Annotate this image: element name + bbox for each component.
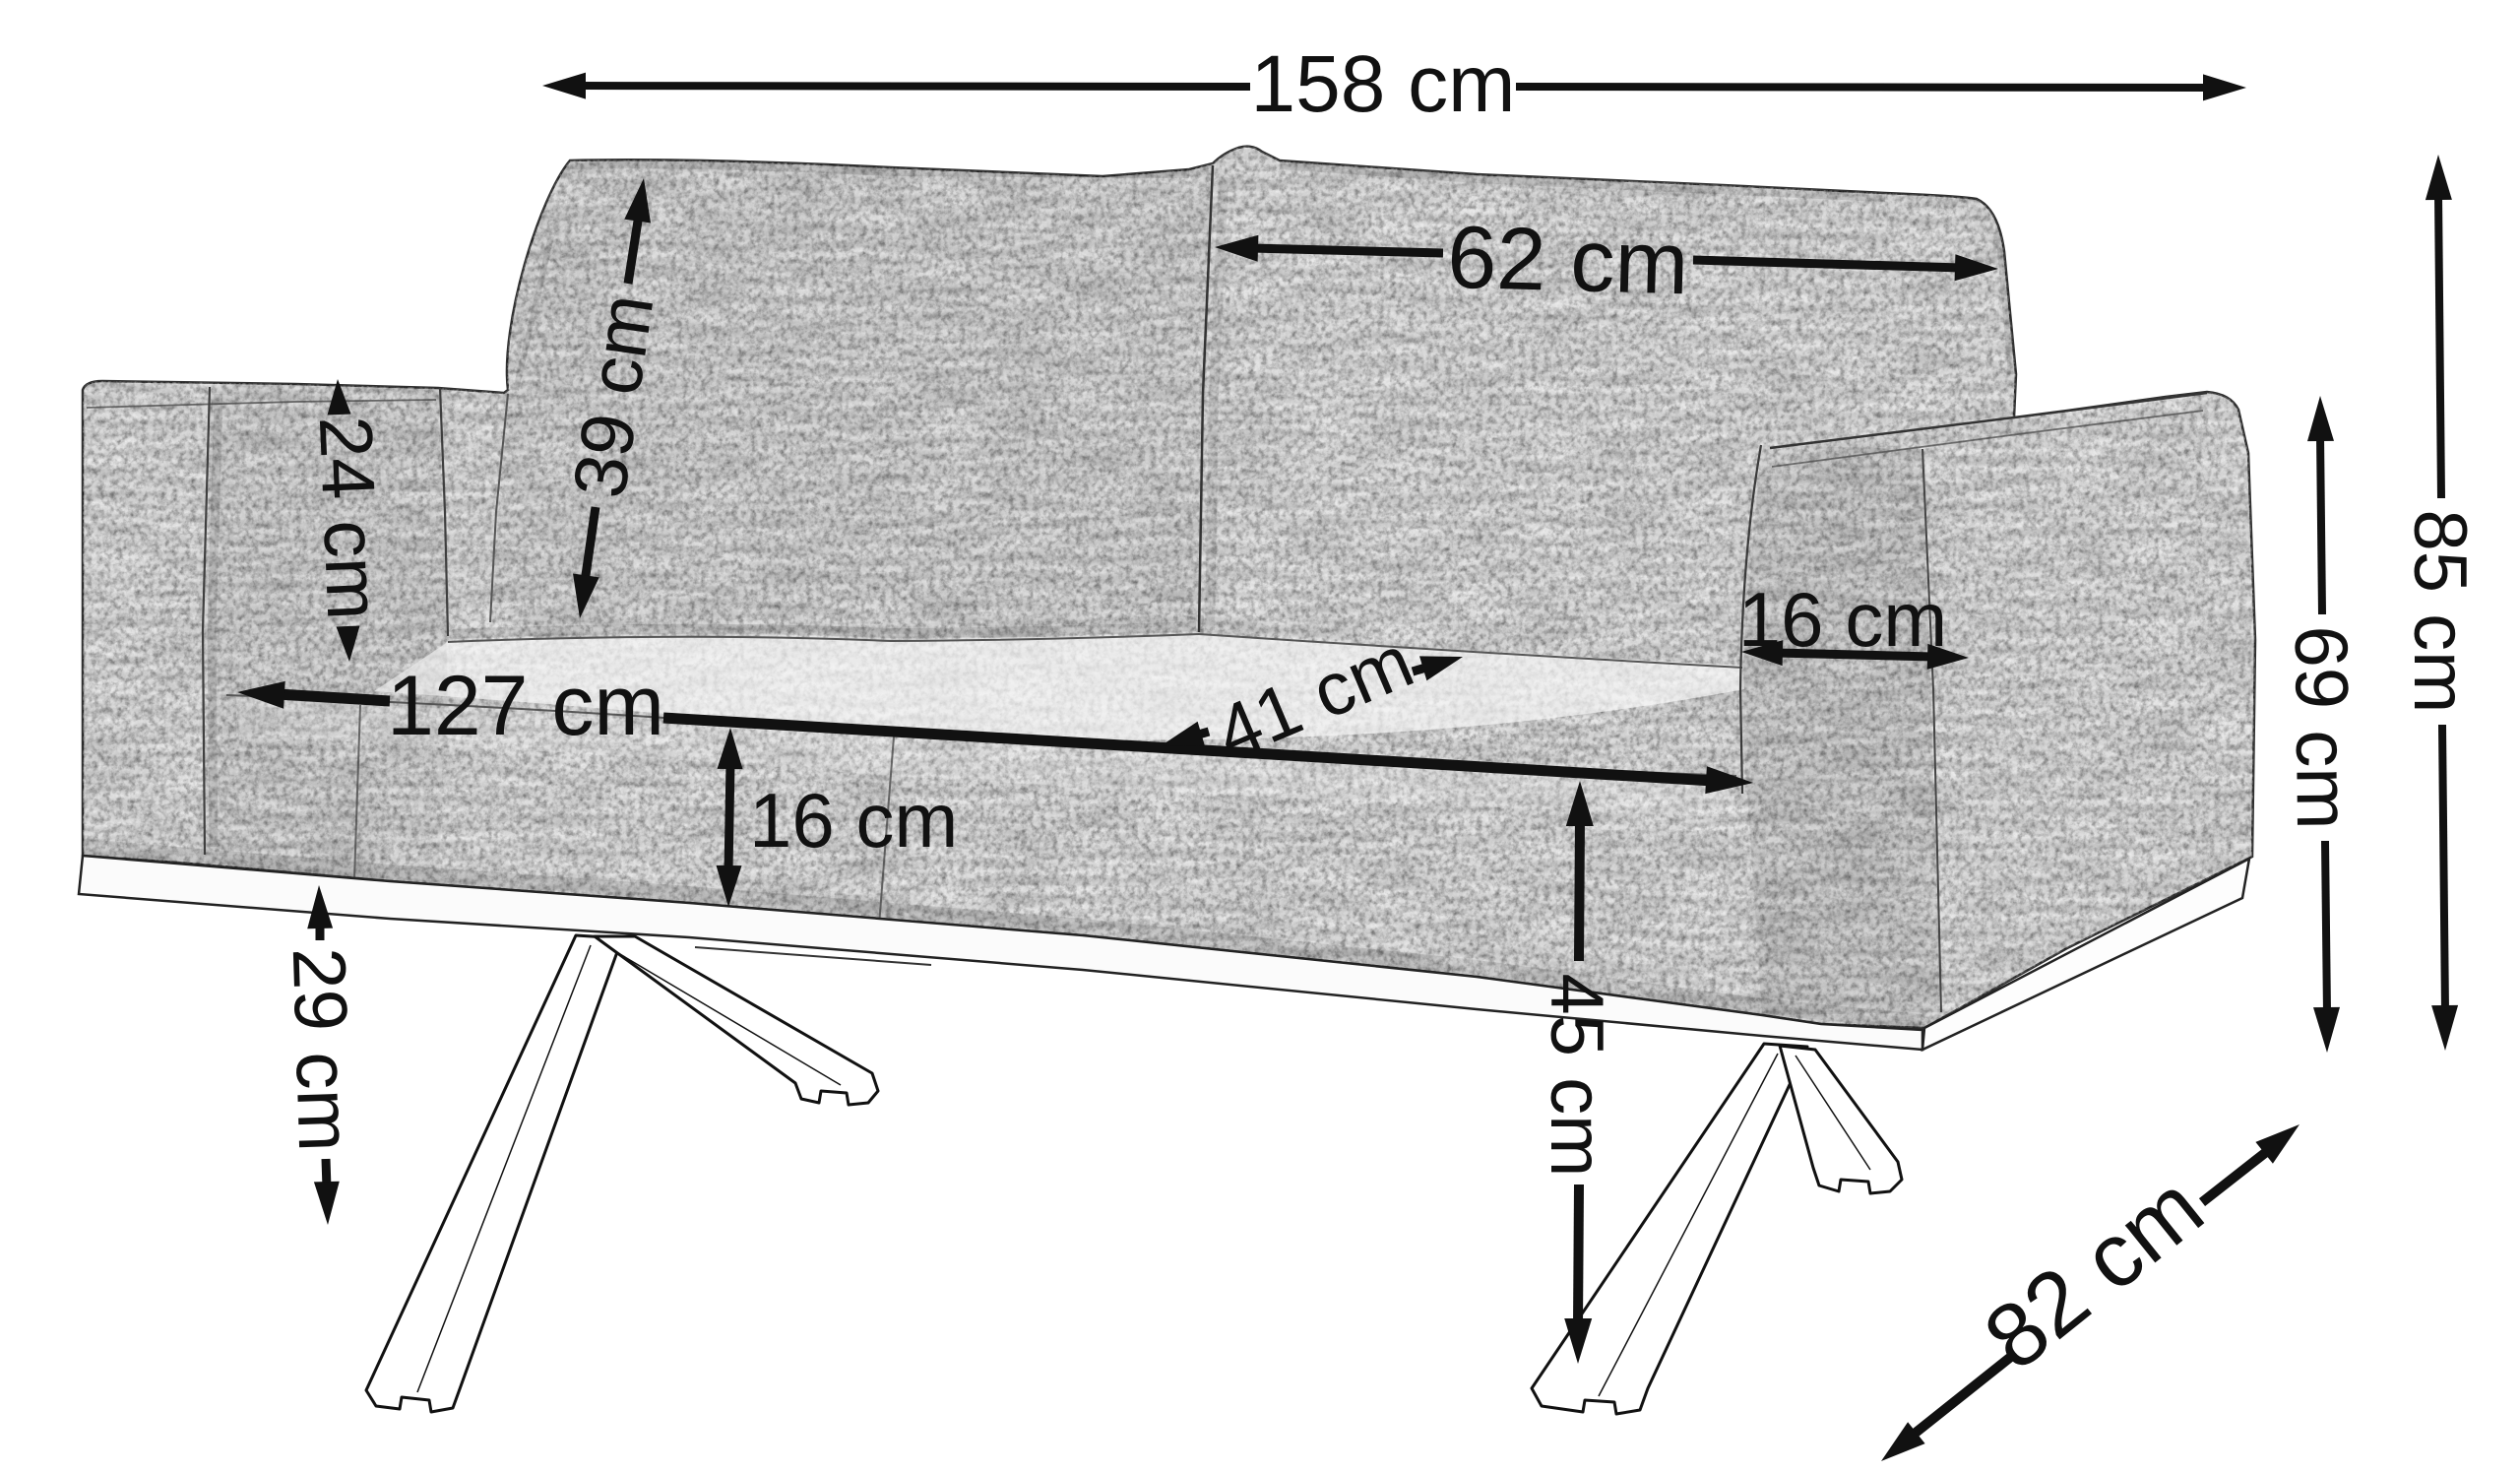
- svg-text:158 cm: 158 cm: [1251, 39, 1516, 129]
- svg-text:69 cm: 69 cm: [2279, 625, 2364, 830]
- svg-text:16 cm: 16 cm: [1738, 576, 1947, 663]
- svg-text:45 cm: 45 cm: [1535, 974, 1618, 1178]
- svg-text:85 cm: 85 cm: [2398, 510, 2482, 714]
- svg-text:29 cm: 29 cm: [277, 946, 366, 1153]
- svg-text:16 cm: 16 cm: [749, 777, 958, 864]
- svg-text:24 cm: 24 cm: [303, 415, 396, 621]
- svg-text:62 cm: 62 cm: [1446, 209, 1690, 314]
- svg-text:127 cm: 127 cm: [387, 659, 664, 753]
